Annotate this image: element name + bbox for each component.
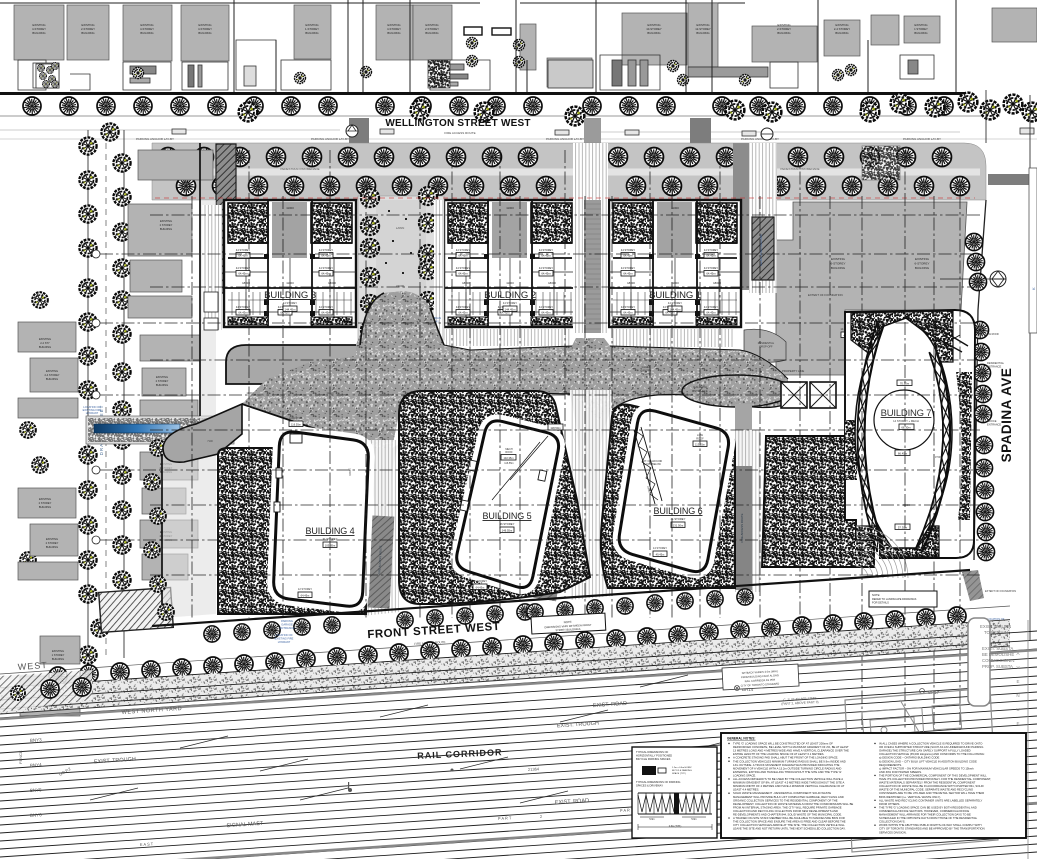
svg-text:BUILDING: BUILDING — [835, 31, 848, 35]
svg-text:BNY5: BNY5 — [30, 787, 43, 793]
svg-text:DEVELOPMENT. COLLECTION OF WAS: DEVELOPMENT. COLLECTION OF WASTE MATERIA… — [733, 802, 853, 806]
svg-text:PARKING ANCHOR LAY-BY: PARKING ANCHOR LAY-BY — [903, 137, 941, 141]
svg-text:PLAZA: PLAZA — [814, 476, 823, 480]
svg-text:11000: 11000 — [506, 281, 514, 285]
svg-text:64.45m: 64.45m — [541, 311, 551, 315]
svg-text:PEDESTRIAN PROMENADE: PEDESTRIAN PROMENADE — [280, 167, 319, 171]
svg-text:FROM AN INTERNAL STAGING AREA.: FROM AN INTERNAL STAGING AREA. THE CITY … — [733, 805, 842, 809]
svg-text:FIRE ACCESS ROUTE: FIRE ACCESS ROUTE — [444, 131, 475, 135]
svg-text:132.35m: 132.35m — [503, 456, 513, 460]
svg-text:THE PORTION OF THE COMMERCIAL: THE PORTION OF THE COMMERCIAL COMPONENT … — [879, 773, 987, 777]
svg-text:GLASS: GLASS — [642, 365, 651, 369]
svg-text:BUILDING: BUILDING — [39, 345, 51, 349]
svg-text:66.30m: 66.30m — [901, 426, 911, 430]
svg-text:A: A — [1016, 651, 1019, 656]
svg-text:CONTAINERS ARE TO BE UTILISED: CONTAINERS ARE TO BE UTILISED AND THE RE… — [879, 791, 984, 795]
svg-text:WELLINGTON STREET WEST: WELLINGTON STREET WEST — [385, 118, 530, 129]
svg-text:U: U — [1016, 707, 1019, 712]
svg-text:ENTRANCE: ENTRANCE — [987, 365, 1002, 369]
svg-text:COMMERCIAL/OFFICE SECTORS. HOW: COMMERCIAL/OFFICE SECTORS. HOWEVER, COMM… — [879, 809, 969, 813]
svg-text:2 STOREY: 2 STOREY — [156, 379, 169, 383]
svg-text:BUILDING: BUILDING — [52, 657, 64, 661]
svg-text:1.2m x 0.6m HORIZ.: 1.2m x 0.6m HORIZ. — [672, 767, 692, 769]
svg-text:WEST: WEST — [17, 660, 48, 672]
svg-text:LOCATION OF: LOCATION OF — [275, 633, 293, 637]
svg-text:ROOF: ROOF — [505, 451, 513, 454]
svg-text:18000: 18000 — [462, 281, 470, 285]
svg-text:BNY6: BNY6 — [30, 812, 43, 818]
svg-text:44 STOREY: 44 STOREY — [319, 305, 333, 309]
svg-text:RE-DEVELOPMENTS AND CHAPTER 84: RE-DEVELOPMENTS AND CHAPTER 844, SOLID W… — [733, 813, 842, 817]
svg-text:TYPICAL DIMENSIONS OF PARKING: TYPICAL DIMENSIONS OF PARKING — [636, 780, 680, 784]
svg-text:OFFICE: OFFICE — [987, 419, 997, 423]
svg-text:THE TYPE 'G' LOADING SPACE CAN: THE TYPE 'G' LOADING SPACE CAN BE USED B… — [879, 805, 977, 809]
svg-text:LAWN: LAWN — [396, 226, 405, 230]
svg-text:64.45m: 64.45m — [623, 311, 633, 315]
svg-text:5.6m: 5.6m — [649, 818, 654, 821]
svg-text:AND 30% FOR HIGHER SPEEDS.: AND 30% FOR HIGHER SPEEDS. — [879, 770, 922, 774]
svg-text:HYDRANT: HYDRANT — [86, 411, 99, 415]
svg-text:EXISTING: EXISTING — [915, 257, 930, 261]
svg-text:BUILDING: BUILDING — [160, 227, 172, 231]
svg-text:EXISTING: EXISTING — [831, 257, 846, 261]
svg-text:REINFORCED CONCRETE, BE LEVEL: REINFORCED CONCRETE, BE LEVEL WITH A MAX… — [733, 745, 849, 749]
svg-text:64.45m: 64.45m — [301, 594, 310, 598]
svg-text:LOADING SPACE.: LOADING SPACE. — [733, 773, 756, 777]
svg-text:PARKING: PARKING — [281, 619, 293, 623]
svg-text:2-4 STY: 2-4 STY — [40, 341, 50, 345]
svg-text:EXISTING: EXISTING — [156, 375, 168, 379]
svg-text:144.45m: 144.45m — [670, 308, 682, 312]
svg-text:44 STOREY: 44 STOREY — [236, 266, 250, 270]
svg-text:13 METRES LONG AND 4 METRES WI: 13 METRES LONG AND 4 METRES WIDE AND HAV… — [733, 749, 849, 753]
svg-text:5.6m: 5.6m — [691, 818, 696, 821]
svg-text:64.45m: 64.45m — [706, 272, 716, 276]
svg-text:24000: 24000 — [348, 468, 353, 476]
svg-text:E A S T: E A S T — [140, 841, 154, 847]
svg-text:SERVICES DIVISION.: SERVICES DIVISION. — [879, 830, 907, 834]
svg-text:SOLID WASTE MANAGEMENT - RESID: SOLID WASTE MANAGEMENT - RESIDENTIAL COM… — [733, 791, 831, 795]
svg-text:CITY OF TORONTO STANDARDS AND: CITY OF TORONTO STANDARDS AND BE APPROVE… — [879, 827, 985, 831]
svg-text:TYPE 'G' LOADING SPACE WILL BE: TYPE 'G' LOADING SPACE WILL BE CONSTRUCT… — [733, 742, 833, 746]
svg-text:BUILDING: BUILDING — [831, 266, 846, 270]
svg-text:PARKING ANCHOR LAY-BY: PARKING ANCHOR LAY-BY — [741, 137, 779, 141]
svg-text:44 STOREY: 44 STOREY — [704, 305, 718, 309]
svg-text:WASTE OF THE MUNICIPAL CODE. S: WASTE OF THE MUNICIPAL CODE. SEPARATE WA… — [879, 788, 973, 792]
svg-text:BUILDING: BUILDING — [140, 31, 153, 35]
svg-text:21364: 21364 — [528, 766, 540, 772]
svg-text:MINIMUM WIDTH OF 4 METRES AND: MINIMUM WIDTH OF 4 METRES AND HAVE A MIN… — [733, 784, 845, 788]
svg-text:64.45m: 64.45m — [458, 311, 468, 315]
svg-text:44 STOREY: 44 STOREY — [236, 305, 250, 309]
svg-text:MANAGEMENT WILL PROVIDE BULK L: MANAGEMENT WILL PROVIDE BULK LIFT COMPAC… — [733, 795, 844, 799]
svg-text:SPACE (TYP.): SPACE (TYP.) — [672, 772, 686, 775]
svg-text:NOTE:: NOTE: — [564, 620, 573, 624]
svg-text:GARAGE: GARAGE — [281, 623, 293, 627]
svg-text:41 STOREY: 41 STOREY — [671, 517, 686, 521]
svg-text:LOW ROOF: LOW ROOF — [289, 416, 304, 420]
svg-text:6-STOREY: 6-STOREY — [831, 262, 846, 266]
svg-text:BNY4: BNY4 — [30, 762, 43, 768]
svg-text:144.45m: 144.45m — [285, 308, 297, 312]
svg-text:BUILDING 2: BUILDING 2 — [484, 290, 536, 301]
svg-text:64.45m: 64.45m — [706, 311, 716, 315]
svg-text:64.45m: 64.45m — [238, 311, 248, 315]
svg-text:ENTERING, EXITING AND TRAVELLI: ENTERING, EXITING AND TRAVELLING THROUGH… — [733, 770, 842, 774]
svg-text:COLLECTION VEHICLE (35,000 kil: COLLECTION VEHICLE (35,000 kilograms) AN… — [879, 752, 985, 756]
svg-text:BUILDING: BUILDING — [156, 383, 168, 387]
svg-text:BUILDING: BUILDING — [387, 31, 400, 35]
svg-text:ENTRANCE: ENTRANCE — [987, 423, 1002, 427]
svg-text:RESIDENTIAL: RESIDENTIAL — [987, 361, 1005, 365]
svg-text:BUILDING 1: BUILDING 1 — [649, 290, 701, 301]
svg-text:c) IMPACT FACTOR – 5% FOR MAXI: c) IMPACT FACTOR – 5% FOR MAXIMUM VEHICU… — [879, 766, 974, 770]
svg-text:GARAGE) THE STRUCTURE CAN SAFE: GARAGE) THE STRUCTURE CAN SAFELY SUPPORT… — [879, 749, 971, 753]
svg-text:BUILDING: BUILDING — [305, 31, 318, 35]
svg-text:LOW: LOW — [527, 411, 533, 415]
svg-text:EXISTING: EXISTING — [39, 497, 51, 501]
svg-text:144.45m: 144.45m — [505, 308, 517, 312]
svg-text:2 STOREY: 2 STOREY — [39, 501, 52, 505]
svg-text:49.45m: 49.45m — [656, 553, 665, 557]
svg-text:BUILDING: BUILDING — [777, 31, 790, 35]
svg-text:BUILDING: BUILDING — [39, 505, 51, 509]
svg-text:PARKING ANCHOR LAY-BY: PARKING ANCHOR LAY-BY — [311, 137, 349, 141]
svg-text:11000: 11000 — [671, 206, 679, 210]
svg-text:b) DESIGN LOAD – CITY BULK LIF: b) DESIGN LOAD – CITY BULK LIFT VEHICLE … — [879, 759, 977, 763]
svg-text:66.45m: 66.45m — [898, 451, 908, 455]
svg-text:FLOOR BELOW: FLOOR BELOW — [643, 463, 661, 466]
svg-text:44 STOREY: 44 STOREY — [621, 248, 635, 252]
svg-text:146.55m: 146.55m — [502, 529, 513, 533]
svg-text:MANAGEMENT WILL ARRANGE FOR TH: MANAGEMENT WILL ARRANGE FOR THEIR COLLEC… — [879, 813, 971, 817]
svg-text:11000: 11000 — [671, 281, 679, 285]
svg-text:ORGANIC COLLECTION SERVICES TO: ORGANIC COLLECTION SERVICES TO THE RESID… — [733, 798, 838, 802]
svg-text:FIRE ACCESS ROUTE: FIRE ACCESS ROUTE — [740, 513, 744, 542]
svg-text:EXISTING: EXISTING — [160, 219, 172, 223]
svg-text:BUILDING: BUILDING — [647, 31, 660, 35]
svg-text:LOW ROOF: LOW ROOF — [985, 332, 1000, 336]
svg-text:MINIMUM GRADIENT OF 8%, AT LEA: MINIMUM GRADIENT OF 8%, AT LEAST 4.5 MET… — [733, 781, 845, 785]
svg-text:P A R T: P A R T — [498, 815, 512, 821]
svg-text:BE DEMOLISHE: BE DEMOLISHE — [982, 652, 1014, 657]
svg-text:46 STOREY: 46 STOREY — [500, 522, 515, 526]
svg-text:OR OVER A SUPPORTED STRUCTURE: OR OVER A SUPPORTED STRUCTURE (SUCH AS A… — [879, 745, 983, 749]
svg-text:BUILDING: BUILDING — [81, 31, 94, 35]
svg-text:EXISTING FIRE: EXISTING FIRE — [275, 637, 294, 641]
svg-text:COLLECTION OF WASTE WILL BE IN: COLLECTION OF WASTE WILL BE IN ACCORDANC… — [879, 784, 984, 788]
svg-text:DROP-OFF: DROP-OFF — [759, 346, 773, 349]
svg-text:64.45m: 64.45m — [458, 272, 468, 276]
svg-text:14 STOREY: 14 STOREY — [653, 546, 667, 550]
svg-text:EXIST. BUILDIN: EXIST. BUILDIN — [980, 624, 1011, 629]
svg-text:18000: 18000 — [548, 281, 556, 285]
svg-text:BUILDING 7: BUILDING 7 — [881, 408, 932, 419]
svg-text:57.30m: 57.30m — [898, 525, 908, 529]
svg-text:44 STOREY: 44 STOREY — [319, 248, 333, 252]
svg-text:MOVEMENT OF A VEHICLE WITH A 1: MOVEMENT OF A VEHICLE WITH A 13.2m OUTSI… — [733, 766, 841, 770]
svg-text:TYPICAL DIMENSIONS OF: TYPICAL DIMENSIONS OF — [636, 750, 669, 754]
svg-text:CITY COLLECTION VEHICLES ARRIV: CITY COLLECTION VEHICLES ARRIVE AT THE S… — [733, 823, 845, 827]
svg-text:118.50m: 118.50m — [550, 426, 561, 430]
svg-text:12 STOREY: 12 STOREY — [298, 587, 312, 591]
svg-text:3700: 3700 — [935, 455, 942, 459]
svg-text:2-4 STOREY: 2-4 STOREY — [44, 373, 59, 377]
svg-text:PARKING ANCHOR LAY-BY: PARKING ANCHOR LAY-BY — [136, 137, 174, 141]
svg-text:LEAST 4.4 METRES.: LEAST 4.4 METRES. — [733, 788, 759, 792]
svg-text:131.50m: 131.50m — [673, 524, 684, 528]
svg-text:IN ALL CASES WHERE A COLLECTIO: IN ALL CASES WHERE A COLLECTION VEHICLE … — [879, 742, 982, 746]
svg-text:BNY3: BNY3 — [30, 737, 43, 743]
svg-text:11000: 11000 — [246, 391, 254, 395]
svg-text:44 STOREY: 44 STOREY — [283, 301, 297, 305]
svg-text:44 STOREY: 44 STOREY — [319, 266, 333, 270]
svg-text:FROM OTHERS.: FROM OTHERS. — [879, 802, 900, 806]
svg-text:BUILDING 5: BUILDING 5 — [482, 511, 531, 521]
svg-text:COLLECTION AND RECYCLING COLLE: COLLECTION AND RECYCLING COLLECTION FROM… — [733, 809, 838, 813]
svg-text:HORIZONTALLY POSITIONED: HORIZONTALLY POSITIONED — [636, 754, 672, 758]
svg-text:EXIST. SUBSTA: EXIST. SUBSTA — [982, 646, 1013, 651]
svg-text:WASTE MATERIALS SEPARATELY FRO: WASTE MATERIALS SEPARATELY FROM THE RESI… — [879, 781, 976, 785]
svg-text:TO REMAIN: TO REMAIN — [984, 630, 1008, 635]
svg-text:K: K — [1031, 287, 1036, 290]
svg-text:ALL ACCESS DRIVEWAYS TO BE USE: ALL ACCESS DRIVEWAYS TO BE USED BY THE C… — [733, 777, 843, 781]
svg-text:COLLECTION DAYS.: COLLECTION DAYS. — [879, 820, 906, 824]
svg-text:BUILDING: BUILDING — [32, 31, 45, 35]
svg-text:PROP. SUBSTA: PROP. SUBSTA — [982, 664, 1013, 669]
svg-text:64.45m: 64.45m — [238, 272, 248, 276]
svg-text:1 STOREY: 1 STOREY — [52, 653, 65, 657]
svg-text:ROOF: ROOF — [526, 415, 534, 419]
svg-text:GENERAL NOTES:: GENERAL NOTES: — [727, 737, 755, 741]
svg-text:44 STOREY: 44 STOREY — [704, 248, 718, 252]
svg-text:64.45m: 64.45m — [541, 272, 551, 276]
svg-text:COMMISSIONIN: COMMISSIONIN — [982, 658, 1014, 663]
svg-text:FENCE: FENCE — [18, 750, 23, 764]
svg-text:E: E — [1016, 721, 1019, 726]
svg-text:BUILDING: BUILDING — [914, 31, 927, 35]
svg-text:EXTENT OF FOUNDATION: EXTENT OF FOUNDATION — [808, 293, 843, 297]
svg-text:44 STOREY: 44 STOREY — [539, 305, 553, 309]
svg-text:SPACES & DRIVEWAY: SPACES & DRIVEWAY — [636, 784, 663, 788]
svg-text:44 STOREY: 44 STOREY — [704, 266, 718, 270]
svg-text:ENTIRE LENGTH OF THE LOADING S: ENTIRE LENGTH OF THE LOADING SPACE OF AT… — [733, 752, 825, 756]
svg-text:EXISTING: EXISTING — [39, 337, 51, 341]
svg-text:EXTENT OF FOUNDATION: EXTENT OF FOUNDATION — [985, 590, 1016, 593]
svg-text:HAVE ITS COLLECTION PROVIDED P: HAVE ITS COLLECTION PROVIDED PRIVATELY. … — [879, 777, 991, 781]
svg-text:BUILDING 6: BUILDING 6 — [653, 506, 702, 516]
svg-text:11000: 11000 — [506, 206, 514, 210]
svg-text:44 STOREY: 44 STOREY — [236, 248, 250, 252]
svg-text:A CONCRETE STAGING PAD SHALL A: A CONCRETE STAGING PAD SHALL ABUT THE FR… — [733, 756, 839, 760]
svg-text:E: E — [1016, 679, 1019, 684]
svg-text:THE COLLECTION SPACE AND ENSUR: THE COLLECTION SPACE AND ENSURE THE AREA… — [733, 820, 846, 824]
svg-text:116.55m: 116.55m — [504, 462, 514, 465]
svg-text:2 STOREY: 2 STOREY — [160, 223, 173, 227]
svg-text:6-STOREY: 6-STOREY — [915, 262, 930, 266]
svg-text:BUILDING: BUILDING — [915, 266, 930, 270]
svg-text:BUILDING: BUILDING — [696, 31, 709, 35]
svg-text:REFER TO LANDSCAPE DRAWINGS: REFER TO LANDSCAPE DRAWINGS — [872, 597, 917, 601]
svg-text:SCHEDULED IN THE OPPOSITE DAYS: SCHEDULED IN THE OPPOSITE DAYS FROM THOS… — [879, 816, 978, 820]
svg-text:44 STOREY: 44 STOREY — [503, 301, 517, 305]
svg-text:44 STOREY: 44 STOREY — [668, 301, 682, 305]
svg-text:N: N — [1016, 693, 1019, 698]
svg-text:7100: 7100 — [207, 440, 213, 443]
svg-text:BICYCLE PARKING: BICYCLE PARKING — [672, 769, 692, 772]
svg-text:REQUIREMENTS.: REQUIREMENTS. — [879, 763, 902, 767]
svg-text:14 STOREY + MECH: 14 STOREY + MECH — [893, 419, 919, 423]
svg-text:FOR DETAILS: FOR DETAILS — [872, 601, 889, 605]
svg-text:11000: 11000 — [286, 206, 294, 210]
svg-text:44 STOREY: 44 STOREY — [621, 266, 635, 270]
svg-text:18000: 18000 — [627, 281, 635, 285]
svg-text:BUILDING: BUILDING — [198, 31, 211, 35]
svg-text:V: V — [1016, 665, 1019, 670]
svg-text:ENTRANCE: ENTRANCE — [280, 626, 295, 630]
svg-text:SPADINA AVE: SPADINA AVE — [999, 368, 1014, 463]
svg-text:116.55m: 116.55m — [291, 423, 301, 427]
svg-text:13m OUTSIDE. A TRUCK MOVEMENT: 13m OUTSIDE. A TRUCK MOVEMENT DIAGRAM WA… — [733, 763, 840, 767]
svg-text:EXISTING: EXISTING — [52, 649, 64, 653]
svg-text:EXISTING: EXISTING — [46, 369, 58, 373]
svg-text:12 STOREY: 12 STOREY — [473, 579, 487, 583]
svg-text:2.6m (TYP.): 2.6m (TYP.) — [669, 825, 682, 828]
svg-text:BUILDING: BUILDING — [425, 31, 438, 35]
svg-text:64.45m: 64.45m — [623, 272, 633, 276]
svg-text:64.45m: 64.45m — [476, 586, 485, 590]
svg-text:A TRAINED ON-SITE STAFF MEMBER: A TRAINED ON-SITE STAFF MEMBER WILL BE A… — [733, 816, 845, 820]
svg-text:EXISTING: EXISTING — [46, 537, 58, 541]
svg-text:BUILDING 3: BUILDING 3 — [264, 290, 316, 301]
svg-text:18000: 18000 — [328, 281, 336, 285]
svg-text:ALL WASTE AND RECYCLING CONTAI: ALL WASTE AND RECYCLING CONTAINER UNITS … — [879, 798, 983, 802]
svg-text:THE COLLECTION VEHICLES MINIMU: THE COLLECTION VEHICLES MINIMUM TURNING … — [733, 759, 846, 763]
svg-text:HYDRANT: HYDRANT — [278, 640, 291, 644]
svg-text:44 STOREY: 44 STOREY — [456, 305, 470, 309]
svg-text:LEAVE THE SITE AND NOT RETURN: LEAVE THE SITE AND NOT RETURN UNTIL THE … — [733, 827, 846, 831]
svg-text:PARKING ANCHOR LAY-BY: PARKING ANCHOR LAY-BY — [546, 137, 584, 141]
svg-text:44 STOREY: 44 STOREY — [621, 305, 635, 309]
svg-text:44 STOREY: 44 STOREY — [539, 266, 553, 270]
svg-text:BUILDING: BUILDING — [46, 377, 58, 381]
svg-text:2 STOREY: 2 STOREY — [46, 541, 59, 545]
svg-text:44 STOREY: 44 STOREY — [456, 266, 470, 270]
svg-text:BUILDING: BUILDING — [46, 545, 58, 549]
svg-text:WORK WITHIN THE ABUTTING PUBLI: WORK WITHIN THE ABUTTING PUBLIC RIGHTS-O… — [879, 823, 982, 827]
svg-text:a) DESIGN CODE – ONTARIO BUILD: a) DESIGN CODE – ONTARIO BUILDING CODE — [879, 756, 939, 760]
svg-text:44 STOREY: 44 STOREY — [539, 248, 553, 252]
svg-text:NOTE:: NOTE: — [872, 593, 880, 597]
svg-text:BICYCLE PARKING SPACES: BICYCLE PARKING SPACES — [636, 757, 671, 761]
svg-text:PROPERTY LINE: PROPERTY LINE — [782, 369, 804, 373]
svg-text:44 STOREY: 44 STOREY — [456, 248, 470, 252]
svg-text:11000: 11000 — [286, 281, 294, 285]
svg-text:BINS IDENTIFIED (i.e. VERTICAL: BINS IDENTIFIED (i.e. VERTICAL WASTE ONL… — [879, 795, 941, 799]
